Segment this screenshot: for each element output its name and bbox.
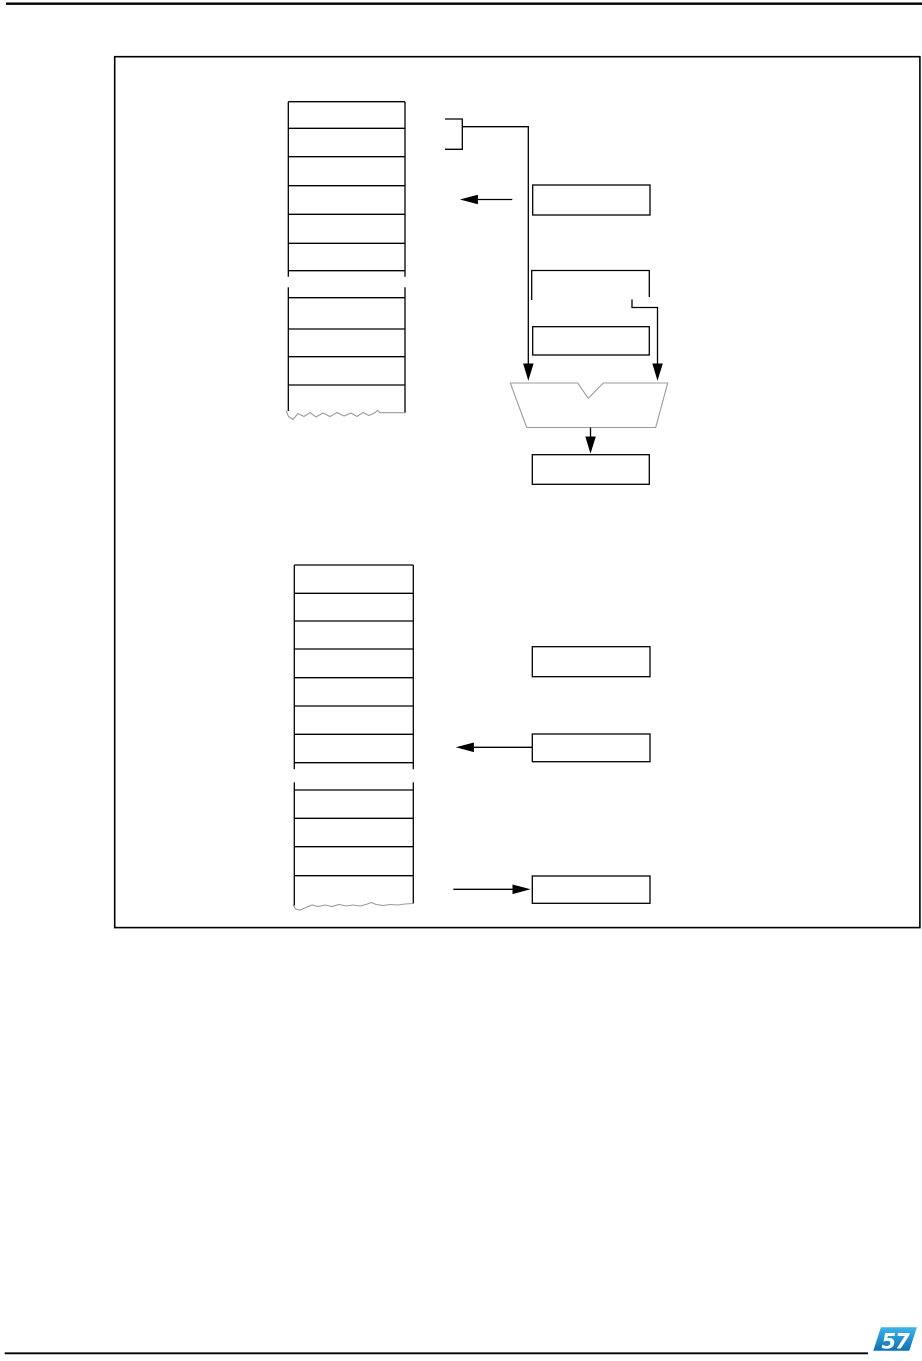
register-box-b1 (532, 647, 650, 677)
register-box-a1 (533, 185, 650, 215)
st-logo: 57 (873, 1327, 917, 1353)
arrowhead-left-top (460, 195, 478, 205)
arrowhead-down-right-alu (652, 364, 663, 381)
arrowhead-left-bottom (456, 743, 474, 753)
alu-symbol (510, 383, 667, 428)
result-box (532, 455, 649, 485)
bracket-to-alu-connector (462, 127, 528, 364)
box-a2-step-connector (632, 300, 658, 365)
figure-frame (115, 57, 920, 928)
st-logo-mark: 57 (882, 1330, 911, 1354)
range-bracket (445, 119, 462, 149)
arrowhead-down-left-alu (523, 364, 534, 381)
bottom-stack-tear-line (293, 903, 413, 911)
top-stack-tear-line (286, 411, 406, 420)
register-box-b3 (532, 876, 650, 903)
page-canvas: 57 (0, 0, 922, 1361)
figure-diagram (5, 4, 922, 1354)
register-box-b2 (532, 734, 650, 762)
register-box-a2-open (532, 271, 650, 301)
register-box-a3 (533, 327, 650, 355)
arrowhead-down-result (585, 437, 596, 454)
arrowhead-right-bottom (513, 885, 531, 895)
datasheet-page: 57 (0, 0, 922, 1361)
